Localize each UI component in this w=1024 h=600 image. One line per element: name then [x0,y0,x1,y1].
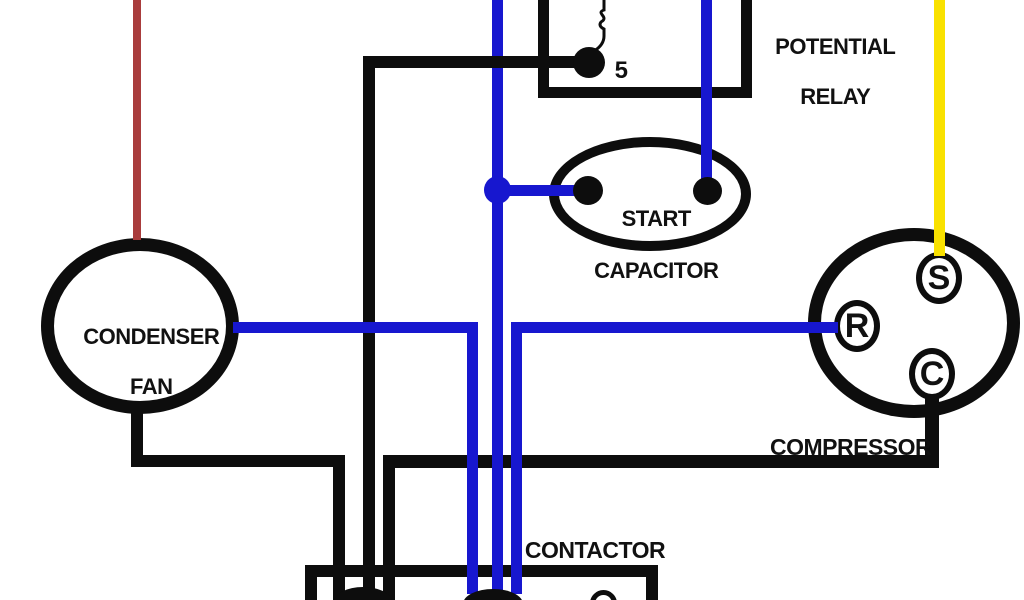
blue-wire-relay-to-capacitor [701,0,712,192]
blue-wire-fan-horizontal [233,322,478,333]
compressor-label: COMPRESSOR [770,434,930,460]
compressor-terminal-r: R [834,300,880,352]
relay-wire-horizontal [363,56,591,68]
blue-junction-dot [484,176,511,204]
blue-wire-main-vertical [492,0,503,594]
blue-wire-r-horizontal [511,322,838,333]
power-wire-yellow [934,0,945,256]
capacitor-terminal-right-dot [693,177,722,205]
relay-terminal-5-label: 5 [606,57,636,84]
compressor-terminal-c: C [909,348,955,400]
capacitor-terminal-left-dot [573,176,603,205]
relay-terminal-5-dot [573,47,605,78]
terminal-r-label: R [845,307,870,346]
terminal-c-label: C [920,355,945,394]
contactor-label: CONTACTOR [520,537,670,563]
wiring-diagram: POTENTIAL RELAY 5 START CAPACITOR CONDEN… [0,0,1024,600]
potential-relay-label: POTENTIAL RELAY [748,9,900,134]
condenser-fan-label: CONDENSER FAN [40,299,240,424]
potential-relay-box [538,0,752,98]
blue-wire-fan-drop [467,322,478,594]
power-wire-red [133,0,141,240]
terminal-s-label: S [928,259,951,298]
compressor-terminal-s: S [916,252,962,304]
fan-wire-horizontal [131,455,345,467]
